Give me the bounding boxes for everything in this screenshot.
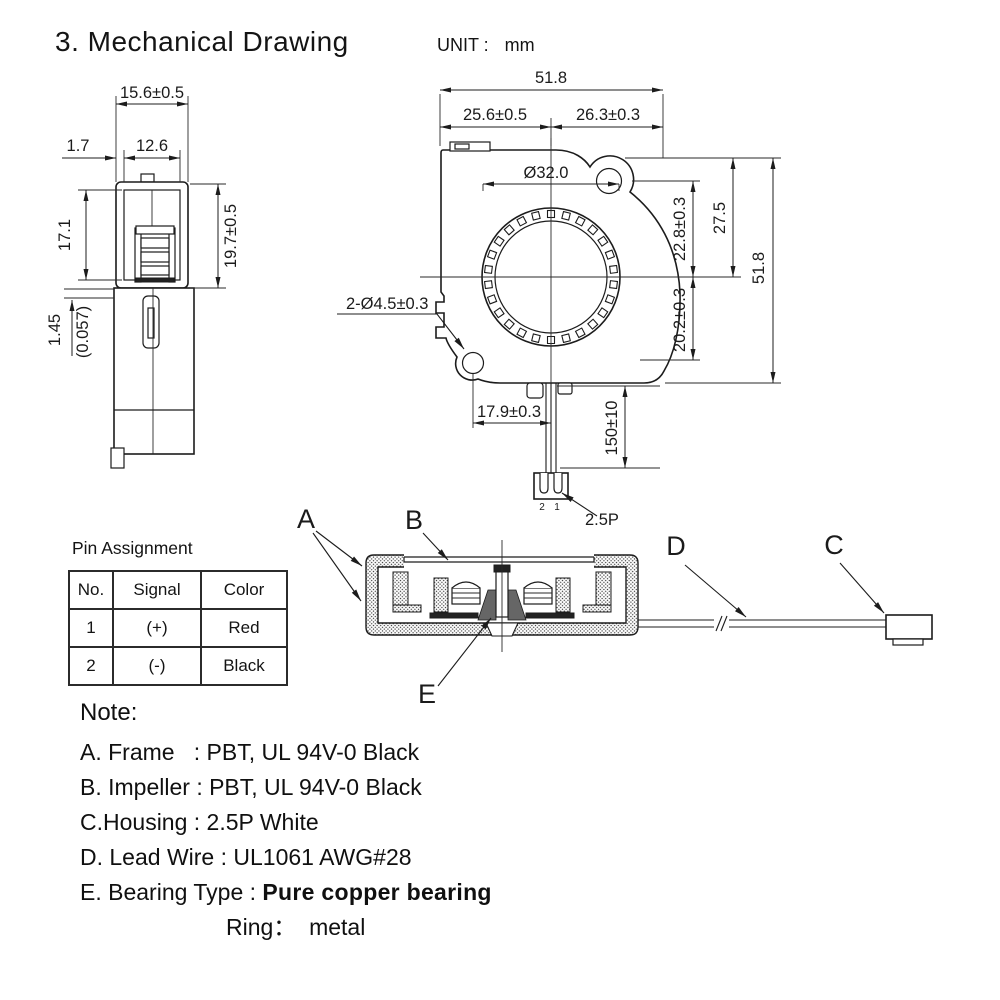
base-plate-left xyxy=(430,613,478,618)
note-housing: C.Housing : 2.5P White xyxy=(80,805,492,840)
pin-color: Black xyxy=(201,647,287,685)
pin-assignment-block: Pin Assignment No. Signal Color 1 (+) Re… xyxy=(68,538,288,686)
dim-side-step-inch: (0.057) xyxy=(74,306,92,358)
coil-left xyxy=(434,578,448,612)
pin-table-row: 1 (+) Red xyxy=(69,609,287,647)
connector-prong xyxy=(554,473,562,493)
label-b: B xyxy=(405,505,423,535)
note-bearing-value: Pure copper bearing xyxy=(262,879,491,905)
front-top-tab-inner xyxy=(455,144,469,149)
note-lead-wire: D. Lead Wire : UL1061 AWG#28 xyxy=(80,840,492,875)
notes-heading: Note: xyxy=(80,699,492,727)
dim-lead-length: 150±10 xyxy=(603,401,621,456)
dim-total-width: 51.8 xyxy=(535,69,567,87)
label-c: C xyxy=(824,530,844,560)
side-view-outline xyxy=(111,174,194,468)
bearing-left xyxy=(478,590,496,620)
side-rail-right xyxy=(169,228,175,282)
mechanical-drawing-page: 3. Mechanical Drawing UNIT :mm xyxy=(0,0,1000,1000)
pin-table: No. Signal Color 1 (+) Red 2 (-) Black xyxy=(68,570,288,686)
side-rail-left xyxy=(135,228,141,282)
pin-signal: (+) xyxy=(113,609,201,647)
cup-foot-left xyxy=(393,605,421,612)
pin-col-color: Color xyxy=(201,571,287,609)
wire-exit-left xyxy=(527,383,543,398)
base-plate-right xyxy=(526,613,574,618)
label-d: D xyxy=(666,531,686,561)
section-view: A B D C E xyxy=(297,504,932,709)
dim-left-half: 25.6±0.5 xyxy=(463,106,527,124)
side-stack-bar xyxy=(141,252,169,262)
pin-no: 2 xyxy=(69,647,113,685)
pin-signal: (-) xyxy=(113,647,201,685)
dim-right-half: 26.3±0.3 xyxy=(576,106,640,124)
section-lead-wire xyxy=(638,615,932,645)
pole-arc-left xyxy=(452,582,480,588)
side-top-tab xyxy=(141,174,154,182)
connector-front xyxy=(534,473,568,499)
dim-side-width: 15.6±0.5 xyxy=(120,84,184,102)
dim-side-inner-width: 12.6 xyxy=(136,137,168,155)
dim-side-step: 1.45 xyxy=(46,314,64,346)
pole-arc-right xyxy=(524,582,552,588)
side-view: 15.6±0.5 1.7 12.6 17.1 19.7±0.5 1.45 xyxy=(46,84,240,468)
notes-block: Note: A. Frame : PBT, UL 94V-0 Black B. … xyxy=(80,699,492,945)
dim-side-offset: 1.7 xyxy=(67,137,90,155)
connector-prong xyxy=(540,473,548,493)
connector-side xyxy=(886,615,932,639)
connector-side-tab xyxy=(893,639,923,645)
side-stack-bar xyxy=(141,266,169,275)
pin-col-no: No. xyxy=(69,571,113,609)
stator-stack-left xyxy=(452,588,480,604)
pin-1-label: 1 xyxy=(554,502,560,513)
side-stack-base xyxy=(136,278,174,282)
stator-stack-right xyxy=(524,588,552,604)
note-bearing: E. Bearing Type : Pure copper bearing xyxy=(80,875,492,910)
pin-table-header-row: No. Signal Color xyxy=(69,571,287,609)
dim-side-depth: 19.7±0.5 xyxy=(222,204,240,268)
mount-hole-top xyxy=(597,169,622,194)
pin-table-title: Pin Assignment xyxy=(72,538,288,559)
dim-hole-to-center: 22.8±0.3 xyxy=(671,197,689,261)
side-foot xyxy=(111,448,124,468)
front-view: 2 1 51.8 25.6±0.5 26.3±0.3 Ø32.0 2-Ø4.5±… xyxy=(337,69,781,529)
dim-inlet-dia: Ø32.0 xyxy=(524,164,569,182)
side-stack-bar xyxy=(141,238,169,248)
dim-mount-holes: 2-Ø4.5±0.3 xyxy=(346,295,428,313)
connector-leader xyxy=(562,493,597,516)
cup-foot-right xyxy=(583,605,611,612)
note-bearing-label: E. Bearing Type : xyxy=(80,879,262,905)
label-a: A xyxy=(297,504,315,534)
dim-total-height: 51.8 xyxy=(750,252,768,284)
dim-side-motor-height: 17.1 xyxy=(56,219,74,251)
coil-right xyxy=(556,578,570,612)
pin-2-label: 2 xyxy=(539,502,545,513)
wire-exit-right xyxy=(558,383,572,394)
dim-top-to-center: 27.5 xyxy=(711,202,729,234)
pin-no: 1 xyxy=(69,609,113,647)
bearing-right xyxy=(508,590,526,620)
pin-color: Red xyxy=(201,609,287,647)
connector-type-label: 2.5P xyxy=(585,511,619,529)
mount-hole-bottom xyxy=(463,353,484,374)
note-frame: A. Frame : PBT, UL 94V-0 Black xyxy=(80,735,492,770)
dim-hole-to-wire: 17.9±0.3 xyxy=(477,403,541,421)
note-impeller: B. Impeller : PBT, UL 94V-0 Black xyxy=(80,770,492,805)
pin-table-row: 2 (-) Black xyxy=(69,647,287,685)
side-stack-cap xyxy=(136,226,174,234)
dim-center-to-hole: 20.2±0.3 xyxy=(671,288,689,352)
pin-col-signal: Signal xyxy=(113,571,201,609)
note-ring: Ring： metal xyxy=(80,910,492,945)
